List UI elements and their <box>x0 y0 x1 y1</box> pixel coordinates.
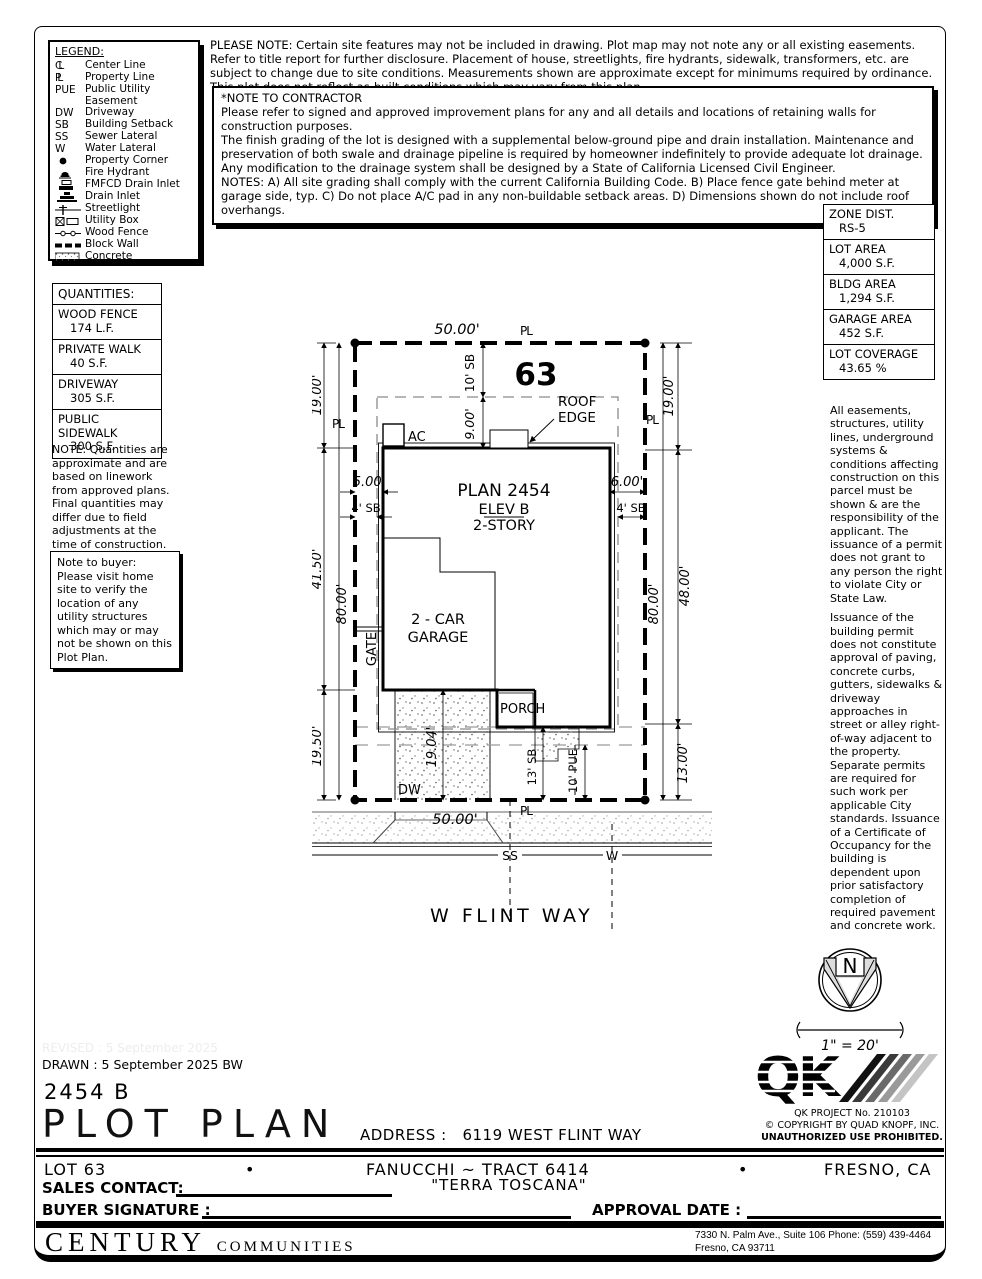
table-row: ZONE DIST.RS-5 <box>824 205 934 240</box>
qk-logo-stripes <box>839 1054 938 1102</box>
north-label: N <box>843 954 858 978</box>
legend-title: LEGEND: <box>55 46 193 58</box>
fire-hydrant-icon <box>55 167 85 179</box>
dim-left-total: 80.00' <box>335 584 350 625</box>
contractor-note-p3: NOTES: A) All site grading shall comply … <box>221 175 925 217</box>
dim-left-bottom: 19.50' <box>312 726 325 767</box>
utility-box-icon <box>55 215 85 227</box>
qk-logo-letters: QK <box>755 1046 842 1109</box>
legend-item-concrete: Concrete <box>55 251 193 263</box>
divider-thin <box>36 1155 944 1157</box>
company-suffix: COMMUNITIES <box>217 1239 356 1255</box>
table-row: LOT AREA4,000 S.F. <box>824 240 934 275</box>
sheet-title: PLOT PLAN <box>42 1102 339 1146</box>
table-row: GARAGE AREA452 S.F. <box>824 310 934 345</box>
company-address-line1: 7330 N. Palm Ave., Suite 106 Phone: (559… <box>695 1230 943 1243</box>
table-row: DRIVEWAY305 S.F. <box>53 375 161 410</box>
buyer-signature-line <box>202 1216 571 1219</box>
pl-label-bottom: PL <box>520 804 533 818</box>
wood-fence-icon <box>55 227 85 239</box>
address-label: ADDRESS : <box>360 1126 447 1144</box>
dim-driveway: 19.04' <box>425 727 440 768</box>
lot-label: LOT 63 <box>44 1160 106 1179</box>
plan-code: 2454 B <box>44 1080 131 1104</box>
approval-date-line <box>747 1216 941 1219</box>
right-note-p1: All easements, structures, utility lines… <box>830 404 943 605</box>
dim-front-roof: 9.00' <box>462 408 477 439</box>
sb-left-label: 4' SB <box>351 501 380 515</box>
company-logo: CENTURY COMMUNITIES <box>45 1227 356 1258</box>
company-address-line2: Fresno, CA 93711 <box>695 1243 943 1256</box>
site-plan-drawing: 50.00' PL 63 PL PL PL 10' SB 9.00' ROOF … <box>312 316 712 938</box>
dim-width-bottom: 50.00' <box>432 812 478 828</box>
bullet-separator: • <box>738 1160 748 1179</box>
roof-edge-label-1: ROOF <box>558 394 596 410</box>
sb-right-label: 4' SB <box>616 501 645 515</box>
contractor-note-p2: The finish grading of the lot is designe… <box>221 133 925 175</box>
table-row: LOT COVERAGE43.65 % <box>824 345 934 379</box>
dim-side-left: 5.00' <box>353 475 386 490</box>
dim-right-top: 19.00' <box>662 376 677 417</box>
plot-plan-sheet: LEGEND: CLCenter Line PLProperty Line PU… <box>0 0 982 1279</box>
legend-item-pue: PUEPublic Utility Easement <box>55 84 193 107</box>
qk-copyright: © COPYRIGHT BY QUAD KNOPF, INC. <box>765 1120 939 1131</box>
divider-thick <box>36 1148 944 1152</box>
dim-right-mid: 48.00' <box>678 566 693 607</box>
dim-left-mid: 41.50' <box>312 549 325 590</box>
address-value: 6119 WEST FLINT WAY <box>462 1126 641 1144</box>
quantities-title: QUANTITIES: <box>53 284 161 305</box>
quantities-note: NOTE: Quantities are approximate and are… <box>52 443 180 551</box>
bullet-separator: • <box>245 1160 255 1179</box>
water-lateral-label: W <box>606 848 618 863</box>
community-name: "TERRA TOSCANA" <box>404 1176 614 1194</box>
revised-line: REVISED : 5 September 2025 <box>42 1041 218 1055</box>
sales-contact-line <box>176 1194 392 1197</box>
garage-label-2: GARAGE <box>408 630 469 646</box>
dim-right-total: 80.00' <box>647 584 662 625</box>
contractor-note-p1: Please refer to signed and approved impr… <box>221 105 925 133</box>
qk-project-number: QK PROJECT No. 210103 <box>794 1108 910 1119</box>
drawn-line: DRAWN : 5 September 2025 BW <box>42 1057 243 1072</box>
right-note-p2: Issuance of the building permit does not… <box>830 611 943 933</box>
roof-edge-label-2: EDGE <box>558 410 596 426</box>
lot-number: 63 <box>514 357 557 393</box>
rear-pue-label: 10' PUE <box>566 749 580 793</box>
approval-date-label: APPROVAL DATE : <box>592 1201 741 1219</box>
qk-logo: QK QK PROJECT No. 210103 © COPYRIGHT BY … <box>755 1046 945 1148</box>
roof-bump <box>490 430 528 448</box>
table-row: PRIVATE WALK40 S.F. <box>53 340 161 375</box>
pl-label-left: PL <box>332 417 345 431</box>
table-row: WOOD FENCE174 L.F. <box>53 305 161 340</box>
block-wall-icon <box>55 239 85 251</box>
dim-right-bottom: 13.00' <box>676 743 691 784</box>
concrete-icon <box>55 251 85 263</box>
buyer-signature-label: BUYER SIGNATURE : <box>42 1201 211 1219</box>
ac-label: AC <box>408 430 426 445</box>
dw-label: DW <box>398 783 421 798</box>
buyer-note-box: Note to buyer: Please visit home site to… <box>50 551 180 669</box>
company-address: 7330 N. Palm Ave., Suite 106 Phone: (559… <box>695 1230 943 1255</box>
city-label: FRESNO, CA <box>824 1160 931 1179</box>
ac-pad <box>383 424 404 446</box>
drain-inlet-icon <box>55 191 85 203</box>
street-name: W FLINT WAY <box>430 905 593 927</box>
property-corner-icon <box>55 155 85 166</box>
garage-label-1: 2 - CAR <box>411 612 465 628</box>
contractor-note-title: *NOTE TO CONTRACTOR <box>221 91 925 105</box>
dim-front-setback: 10' SB <box>463 354 477 392</box>
right-notes: All easements, structures, utility lines… <box>830 404 943 939</box>
rear-sb-label: 13' SB <box>525 749 539 786</box>
dim-side-right: 6.00' <box>611 475 644 490</box>
porch-label: PORCH <box>500 702 545 717</box>
scale-bar <box>797 1022 903 1038</box>
zone-table: ZONE DIST.RS-5 LOT AREA4,000 S.F. BLDG A… <box>823 204 935 380</box>
pl-label-right: PL <box>646 413 659 427</box>
plan-story: 2-STORY <box>473 518 535 534</box>
dim-width-top: 50.00' <box>434 322 480 338</box>
sales-contact-label: SALES CONTACT: <box>42 1179 184 1197</box>
qk-unauthorized: UNAUTHORIZED USE PROHIBITED. <box>761 1132 943 1143</box>
pl-label-top: PL <box>520 324 533 338</box>
plan-name: PLAN 2454 <box>457 481 550 501</box>
company-name: CENTURY <box>45 1227 205 1257</box>
quantities-table: QUANTITIES: WOOD FENCE174 L.F. PRIVATE W… <box>52 283 162 459</box>
sewer-lateral-label: SS <box>502 848 518 863</box>
fmfcd-drain-inlet-icon <box>55 179 85 191</box>
dim-left-top: 19.00' <box>312 375 325 416</box>
table-row: BLDG AREA1,294 S.F. <box>824 275 934 310</box>
legend-box: LEGEND: CLCenter Line PLProperty Line PU… <box>48 40 200 261</box>
north-arrow: N 1" = 20' <box>788 938 912 1054</box>
gate-label: GATE <box>365 632 380 666</box>
address-row: ADDRESS : 6119 WEST FLINT WAY <box>360 1126 642 1144</box>
plan-elev: ELEV B <box>479 502 530 518</box>
streetlight-icon <box>55 203 85 215</box>
